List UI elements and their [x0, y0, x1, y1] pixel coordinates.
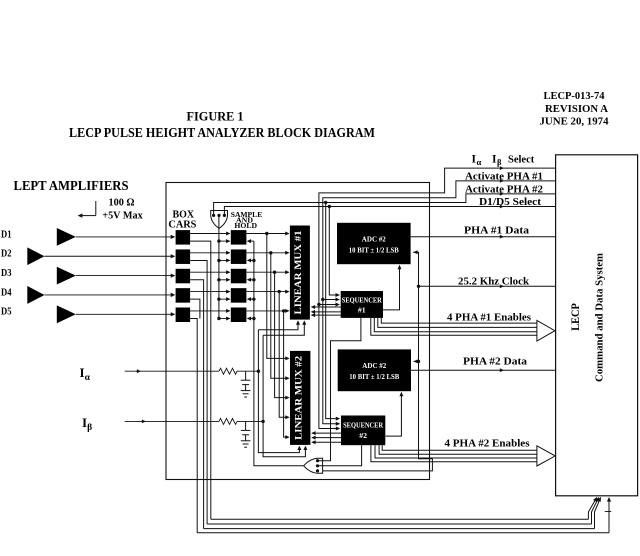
svg-text:Command and Data System: Command and Data System: [594, 253, 606, 382]
svg-text:4 PHA #2 Enables: 4 PHA #2 Enables: [445, 438, 530, 449]
svg-text:D3: D3: [1, 267, 12, 279]
svg-text:PHA #2 Data: PHA #2 Data: [463, 357, 528, 368]
svg-text:LINEAR MUX #2: LINEAR MUX #2: [295, 356, 305, 440]
svg-text:JUNE 20, 1974: JUNE 20, 1974: [540, 116, 609, 128]
svg-text:PHA #1 Data: PHA #1 Data: [464, 226, 530, 237]
svg-text:#1: #1: [358, 306, 366, 315]
svg-text:D2: D2: [1, 248, 12, 260]
svg-text:FIGURE 1: FIGURE 1: [187, 110, 244, 124]
svg-text:REVISION A: REVISION A: [545, 103, 608, 115]
svg-text:LEPT AMPLIFIERS: LEPT AMPLIFIERS: [14, 178, 129, 193]
svg-text:HOLD: HOLD: [234, 222, 257, 230]
svg-text:SEQUENCER: SEQUENCER: [343, 420, 383, 429]
svg-text:CARS: CARS: [168, 218, 196, 230]
svg-text:LINEAR MUX #1: LINEAR MUX #1: [294, 230, 304, 314]
svg-text:D5: D5: [1, 306, 12, 318]
svg-text:LECP-013-74: LECP-013-74: [544, 90, 605, 102]
svg-text:+5V Max: +5V Max: [102, 211, 143, 222]
svg-text:#2: #2: [359, 431, 367, 440]
svg-text:10 BIT ± 1/2 LSB: 10 BIT ± 1/2 LSB: [349, 247, 399, 255]
svg-text:D1: D1: [1, 228, 12, 240]
svg-text:LECP: LECP: [568, 303, 582, 331]
svg-text:10 BIT ± 1/2 LSB: 10 BIT ± 1/2 LSB: [349, 373, 399, 381]
svg-text:SEQUENCER: SEQUENCER: [342, 295, 382, 304]
svg-text:LECP PULSE HEIGHT ANALYZER BLO: LECP PULSE HEIGHT ANALYZER BLOCK DIAGRAM: [69, 126, 375, 141]
svg-text:100 Ω: 100 Ω: [109, 198, 135, 209]
svg-text:D4: D4: [1, 286, 12, 298]
svg-text:4 PHA #1 Enables: 4 PHA #1 Enables: [447, 313, 531, 324]
svg-text:ADC #2: ADC #2: [362, 361, 386, 370]
svg-text:ADC #2: ADC #2: [362, 235, 386, 244]
